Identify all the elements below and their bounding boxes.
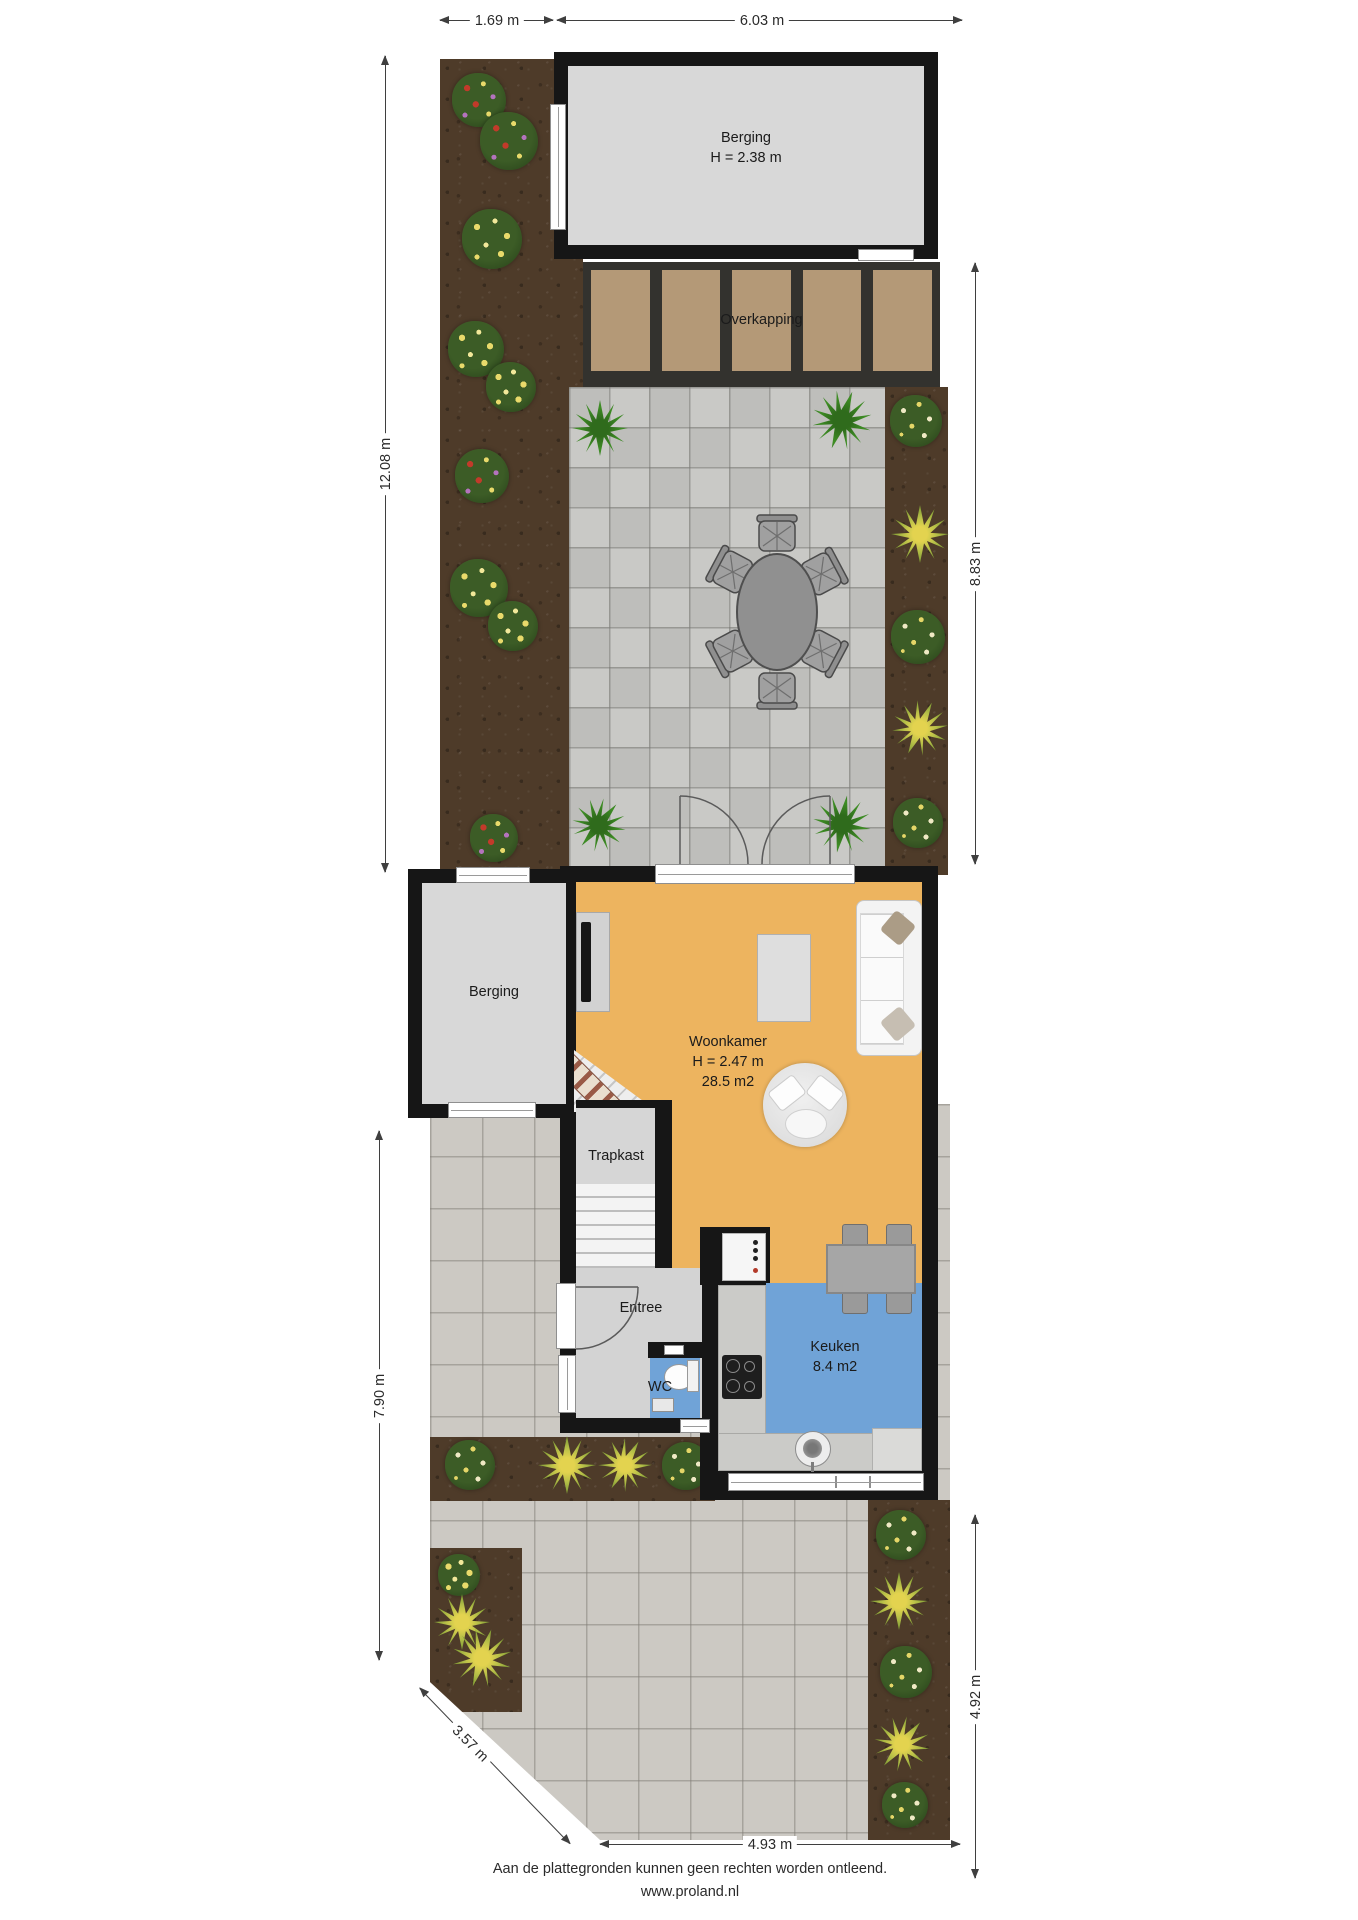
sink-basin	[803, 1439, 822, 1458]
room-name: Woonkamer	[598, 1032, 858, 1052]
bush-flowers	[893, 798, 943, 848]
room-height: H = 2.38 m	[646, 148, 846, 168]
garden-dining-set	[700, 500, 860, 720]
flower-bush	[470, 814, 518, 862]
trapkast-label: Trapkast	[562, 1146, 670, 1166]
fridge	[722, 1233, 766, 1281]
dimension-label-left-lower: 7.90 m	[371, 1369, 389, 1423]
toilet-tank	[687, 1360, 699, 1392]
kitchen-table	[826, 1244, 916, 1294]
flower-bush	[462, 209, 522, 269]
garden-door-swing-arcs	[655, 788, 855, 868]
flower-bush	[438, 1554, 480, 1596]
sofa	[856, 900, 922, 1056]
room-name: Keuken	[765, 1337, 905, 1357]
storage-top-door	[858, 249, 914, 261]
burner	[744, 1361, 755, 1372]
bush-flowers	[890, 395, 942, 447]
living-room-label: Woonkamer H = 2.47 m 28.5 m2	[598, 1032, 858, 1092]
flower-bush	[480, 112, 538, 170]
bush-flowers	[480, 112, 538, 170]
room-height: H = 2.47 m	[598, 1052, 858, 1072]
dimension-label-right-lower: 4.92 m	[967, 1670, 985, 1724]
bush-flowers	[891, 610, 945, 664]
room-name: Berging	[646, 128, 846, 148]
flower-bush	[486, 362, 536, 412]
stair-treads	[576, 1184, 655, 1268]
wc-window	[680, 1419, 710, 1433]
floor-plan: Berging H = 2.38 m Overkapping	[0, 0, 1358, 1920]
bush-flowers	[438, 1554, 480, 1596]
dishwasher	[872, 1428, 922, 1471]
wc-door	[664, 1345, 684, 1355]
footer: Aan de plattegronden kunnen geen rechten…	[340, 1858, 1040, 1904]
flower-bush	[445, 1440, 495, 1490]
footer-website: www.proland.nl	[340, 1881, 1040, 1904]
wc-sink	[652, 1398, 674, 1412]
window-mullion	[869, 1476, 871, 1488]
kitchen-window	[728, 1473, 924, 1491]
annex-storage-window	[456, 867, 530, 883]
storage-top-window	[550, 104, 566, 230]
window-mullion	[835, 1476, 837, 1488]
dimension-label-left-upper: 12.08 m	[377, 433, 395, 495]
armchair-seat	[785, 1109, 827, 1139]
bush-flowers	[470, 814, 518, 862]
flower-bush	[488, 601, 538, 651]
bush-flowers	[488, 601, 538, 651]
coffee-table	[757, 934, 811, 1022]
flower-bush	[890, 395, 942, 447]
dimension-label-right-upper: 8.83 m	[967, 537, 985, 591]
trapkast-top-wall	[576, 1100, 655, 1108]
annex-storage-door	[448, 1102, 536, 1118]
bush-flowers	[445, 1440, 495, 1490]
flower-bush	[455, 449, 509, 503]
dimension-label-top-left: 1.69 m	[470, 12, 524, 30]
kitchen-sink	[795, 1431, 831, 1467]
entry-window	[558, 1355, 576, 1413]
cooktop	[722, 1355, 762, 1399]
flower-bush	[876, 1510, 926, 1560]
burner	[726, 1359, 740, 1373]
dimension-label-bottom: 4.93 m	[743, 1836, 797, 1854]
annex-storage-label: Berging	[422, 982, 566, 1002]
storage-top-label: Berging H = 2.38 m	[646, 128, 846, 168]
flower-bush	[882, 1782, 928, 1828]
burner	[744, 1381, 755, 1392]
bush-flowers	[455, 449, 509, 503]
bush-flowers	[880, 1646, 932, 1698]
fridge-controls	[753, 1240, 758, 1245]
kitchen-label: Keuken 8.4 m2	[765, 1337, 905, 1377]
bush-flowers	[882, 1782, 928, 1828]
burner	[726, 1379, 740, 1393]
sink-tap	[811, 1462, 814, 1472]
flower-bush	[880, 1646, 932, 1698]
bush-flowers	[486, 362, 536, 412]
flower-bush	[893, 798, 943, 848]
footer-disclaimer: Aan de plattegronden kunnen geen rechten…	[340, 1858, 1040, 1881]
tv	[581, 922, 591, 1002]
room-area: 28.5 m2	[598, 1072, 858, 1092]
canopy-label: Overkapping	[583, 310, 940, 330]
stair-side-wall	[655, 1100, 672, 1270]
bush-flowers	[876, 1510, 926, 1560]
wc-label: WC	[640, 1377, 680, 1397]
garden-sliding-door	[655, 864, 855, 884]
room-area: 8.4 m2	[765, 1357, 905, 1377]
dimension-label-top-right: 6.03 m	[735, 12, 789, 30]
flower-bush	[891, 610, 945, 664]
bush-flowers	[462, 209, 522, 269]
